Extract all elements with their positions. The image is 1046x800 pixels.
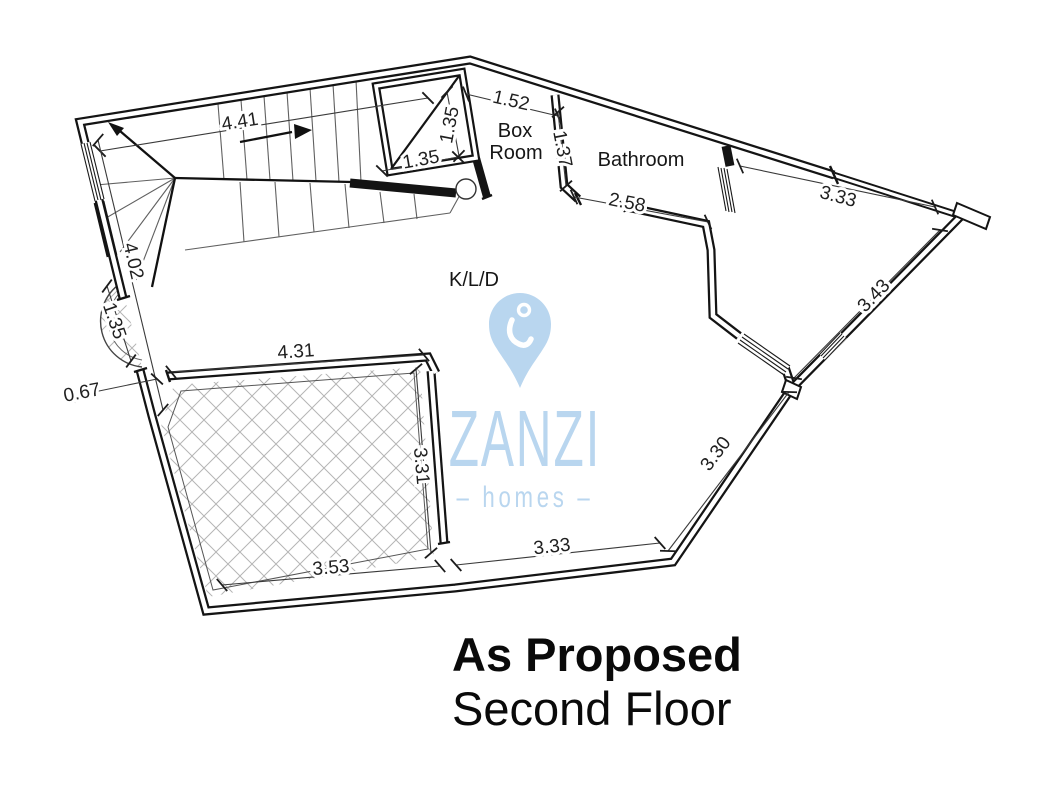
logo-pin-icon [489, 293, 551, 388]
logo-tagline-text: – homes – [414, 483, 636, 513]
dimension-label: 0.67 [62, 379, 102, 407]
title-second-floor: Second Floor [452, 684, 742, 733]
stair-direction-arrows [108, 122, 312, 139]
room-label: Bathroom [598, 149, 685, 171]
drawing-title: As Proposed Second Floor [452, 630, 742, 734]
dimension-tick [102, 280, 112, 293]
dimension-label: 3.43 [854, 275, 895, 316]
windows [81, 142, 846, 375]
dimension-label: 4.02 [119, 241, 148, 282]
floorplan-page: 4.411.351.351.521.372.583.333.434.021.35… [0, 0, 1046, 800]
dimension-label: 1.52 [491, 87, 532, 116]
dimension-label: 1.35 [401, 146, 441, 173]
window-glazing-lines [81, 142, 846, 375]
dimension-label: 1.35 [436, 105, 464, 145]
dimension-tick [93, 134, 103, 146]
dimension-label: 3.53 [312, 556, 351, 580]
title-as-proposed: As Proposed [452, 630, 742, 679]
room-label: K/L/D [449, 269, 499, 291]
dimension-tick [422, 92, 433, 103]
dimension-line [668, 392, 789, 551]
dimension-tick [441, 86, 452, 98]
dimension-label: 2.58 [607, 189, 647, 217]
logo-brand-text: ZANZI [432, 399, 618, 479]
column-circle [456, 179, 476, 199]
dimension-label: 1.37 [548, 129, 576, 169]
room-label: Box [498, 120, 532, 142]
dimension-label: 4.31 [277, 340, 315, 364]
dimension-label: 3.33 [533, 535, 572, 560]
dimension-label: 4.41 [220, 109, 260, 136]
hatched-terrace-area [161, 367, 434, 597]
dimension-label: 3.31 [409, 447, 433, 486]
dimension-label: 3.30 [696, 433, 735, 475]
room-label: Room [489, 142, 542, 164]
dimension-label: 3.33 [817, 182, 858, 212]
staircase-walk-lines [120, 131, 352, 287]
